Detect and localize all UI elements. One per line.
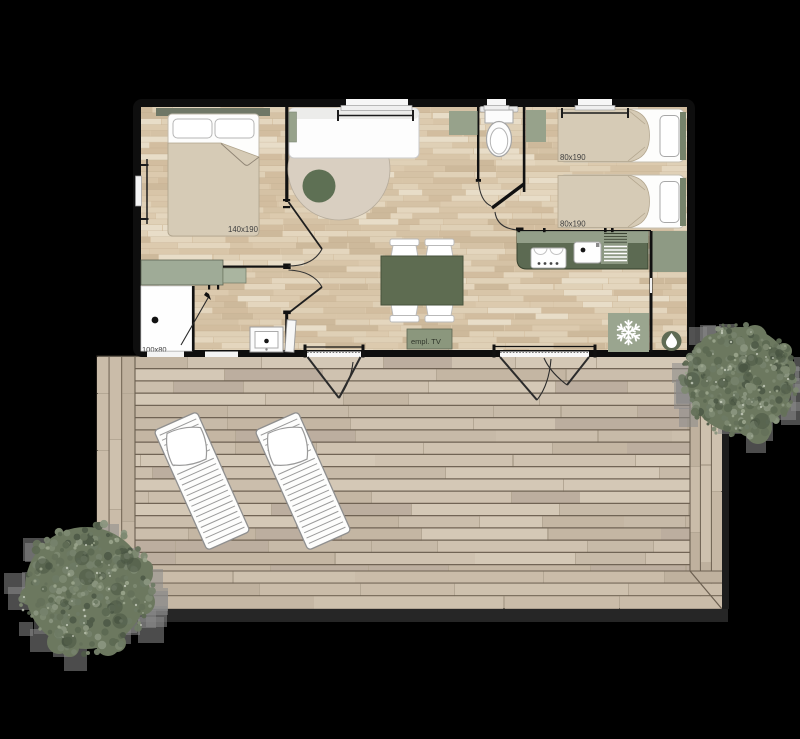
svg-text:140x190: 140x190 — [228, 225, 259, 234]
svg-text:empl. TV: empl. TV — [411, 337, 441, 346]
svg-text:80x190: 80x190 — [560, 220, 586, 229]
svg-text:80x190: 80x190 — [560, 153, 586, 162]
